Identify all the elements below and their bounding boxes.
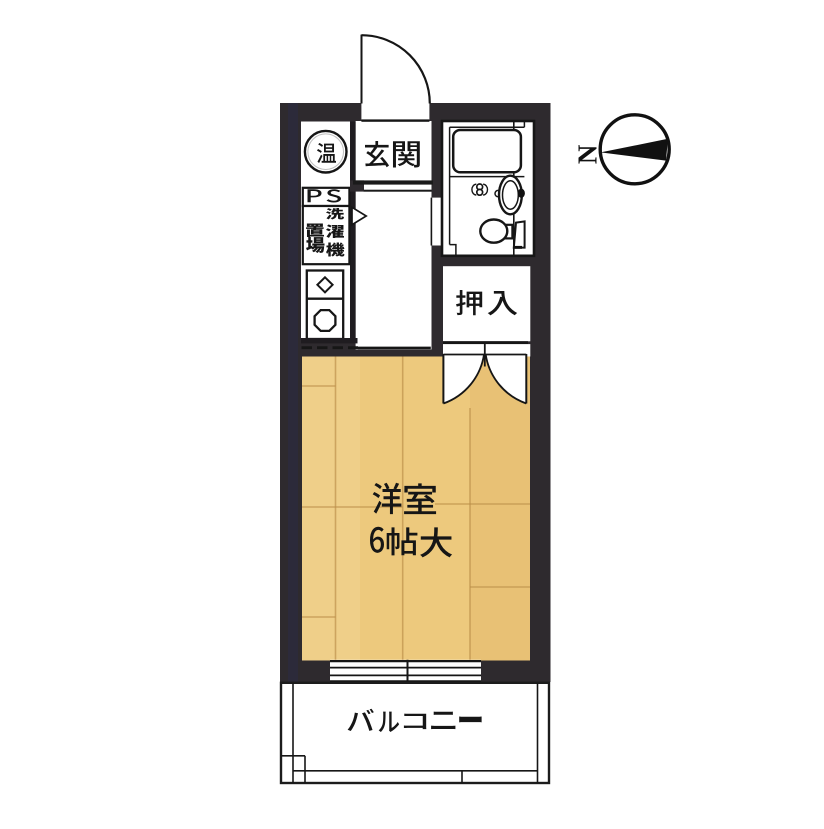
svg-text:N: N (573, 144, 603, 164)
